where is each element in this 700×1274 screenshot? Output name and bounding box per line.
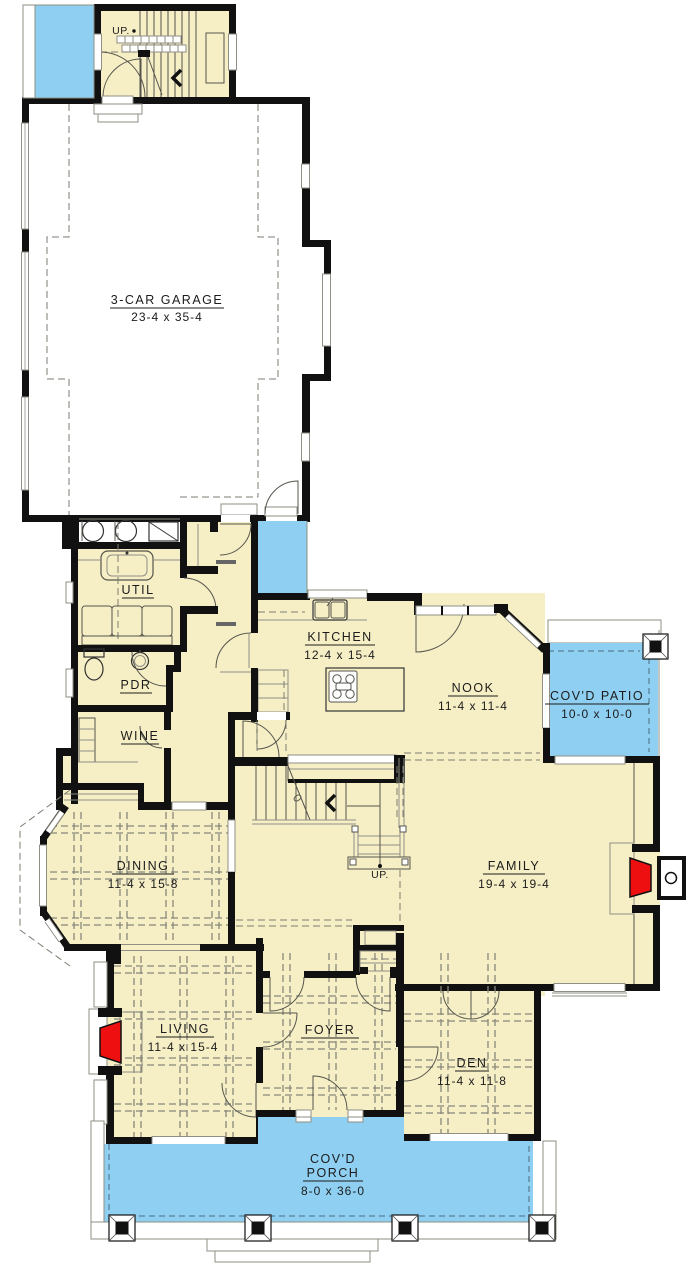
svg-text:COV'D: COV'D xyxy=(310,1152,356,1166)
svg-text:UP.: UP. xyxy=(371,869,389,881)
svg-text:DEN: DEN xyxy=(457,1056,488,1070)
svg-text:11-4 x 11-8: 11-4 x 11-8 xyxy=(437,1074,507,1088)
svg-text:11-4 x 15-4: 11-4 x 15-4 xyxy=(148,1040,219,1054)
svg-text:11-4 x 11-4: 11-4 x 11-4 xyxy=(438,699,508,713)
svg-text:10-0 x 10-0: 10-0 x 10-0 xyxy=(561,707,633,721)
svg-text:FOYER: FOYER xyxy=(305,1023,356,1037)
svg-text:NOOK: NOOK xyxy=(452,681,495,695)
svg-text:23-4 x 35-4: 23-4 x 35-4 xyxy=(131,310,203,324)
svg-text:FAMILY: FAMILY xyxy=(488,859,541,873)
svg-text:KITCHEN: KITCHEN xyxy=(307,630,372,644)
svg-text:LIVING: LIVING xyxy=(160,1022,210,1036)
svg-text:DINING: DINING xyxy=(117,859,170,873)
svg-text:COV'D PATIO: COV'D PATIO xyxy=(550,689,644,703)
svg-text:PORCH: PORCH xyxy=(307,1166,360,1180)
svg-text:12-4 x 15-4: 12-4 x 15-4 xyxy=(304,648,376,662)
svg-text:UP.: UP. xyxy=(112,25,130,37)
svg-text:UTIL: UTIL xyxy=(121,583,154,597)
svg-text:11-4 x 15-8: 11-4 x 15-8 xyxy=(108,877,179,891)
svg-text:19-4 x 19-4: 19-4 x 19-4 xyxy=(478,877,550,891)
svg-text:8-0 x 36-0: 8-0 x 36-0 xyxy=(301,1184,365,1198)
svg-text:3-CAR GARAGE: 3-CAR GARAGE xyxy=(111,293,223,307)
svg-text:PDR: PDR xyxy=(121,678,152,692)
svg-text:WINE: WINE xyxy=(121,729,160,743)
